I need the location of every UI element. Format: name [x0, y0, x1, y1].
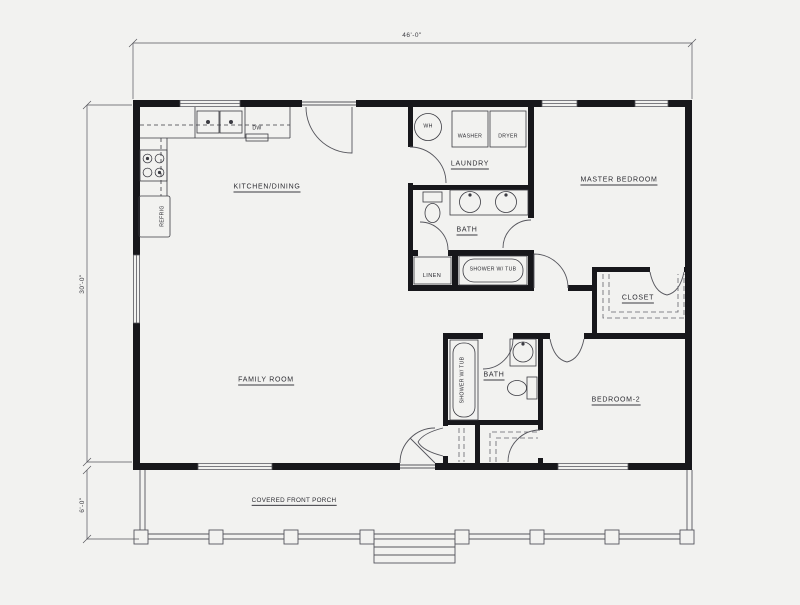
linen-door	[420, 222, 448, 250]
double-vanity	[450, 190, 528, 215]
toilet-master	[423, 192, 442, 223]
master-shower-tub-label: SHOWER W/ TUB	[470, 267, 517, 272]
dryer-label: DRYER	[498, 134, 518, 139]
family-room-label: FAMILY ROOM	[238, 377, 294, 386]
toilet-bath2	[508, 377, 538, 399]
linen-label: LINEN	[423, 274, 441, 280]
dryer-box	[490, 111, 526, 147]
linen-box	[414, 257, 451, 284]
bedroom2-front-window	[558, 463, 628, 470]
master-closet-label: CLOSET	[622, 295, 654, 304]
master-bedroom-door	[534, 254, 568, 288]
refrigerator-label: REFRIG	[160, 205, 165, 226]
master-bedroom-window-2	[635, 100, 668, 107]
master-closet-doors	[650, 272, 684, 295]
front-door	[400, 428, 435, 468]
washer-label: WASHER	[458, 134, 482, 139]
porch-depth-dimension: 6'-0"	[80, 497, 87, 512]
overall-depth-dimension: 30'-0"	[80, 274, 87, 294]
bedroom2-closet-shelf	[490, 432, 538, 462]
bath2-door	[483, 339, 513, 369]
kitchen-window	[180, 100, 240, 107]
hall-closet-shelf	[459, 428, 464, 462]
floor-plan-linework	[0, 0, 800, 605]
water-heater-label: WH	[423, 124, 432, 129]
master-bedroom-label: MASTER BEDROOM	[580, 177, 657, 186]
family-room-front-window	[198, 463, 272, 470]
kitchen-sink	[197, 111, 242, 133]
master-bath-label: BATH	[457, 227, 478, 236]
dim-left	[83, 101, 132, 466]
master-bedroom-window-1	[542, 100, 577, 107]
laundry-door	[410, 147, 446, 183]
bath2-shower-tub-label: SHOWER W/ TUB	[460, 357, 465, 404]
hall-closet-door	[418, 428, 443, 456]
porch	[134, 470, 694, 563]
overall-width-dimension: 46'-0"	[402, 33, 422, 40]
floor-plan-sheet: 46'-0" 30'-0" 6'-0" KITCHEN/DINING FAMIL…	[0, 0, 800, 605]
bedroom2-door	[550, 339, 584, 362]
stove	[140, 150, 167, 181]
kitchen-dining-label: KITCHEN/DINING	[234, 184, 301, 193]
dim-porch	[83, 466, 139, 543]
porch-steps	[374, 539, 455, 563]
bedroom2-label: BEDROOM-2	[592, 397, 641, 406]
dishwasher-box	[246, 134, 268, 141]
covered-front-porch-label: COVERED FRONT PORCH	[252, 498, 337, 506]
dishwasher-label: DW	[252, 126, 261, 131]
laundry-label: LAUNDRY	[451, 161, 489, 170]
bath2-sink	[510, 339, 536, 366]
porch-right-rail	[687, 470, 692, 539]
bedroom2-closet-door	[508, 430, 540, 462]
master-bath-door	[503, 220, 531, 248]
dim-top	[129, 39, 696, 99]
bath2-label: BATH	[484, 372, 505, 381]
family-room-side-window	[133, 255, 140, 323]
washer-box	[452, 111, 488, 147]
back-door	[302, 102, 356, 153]
porch-left-rail	[140, 470, 145, 534]
